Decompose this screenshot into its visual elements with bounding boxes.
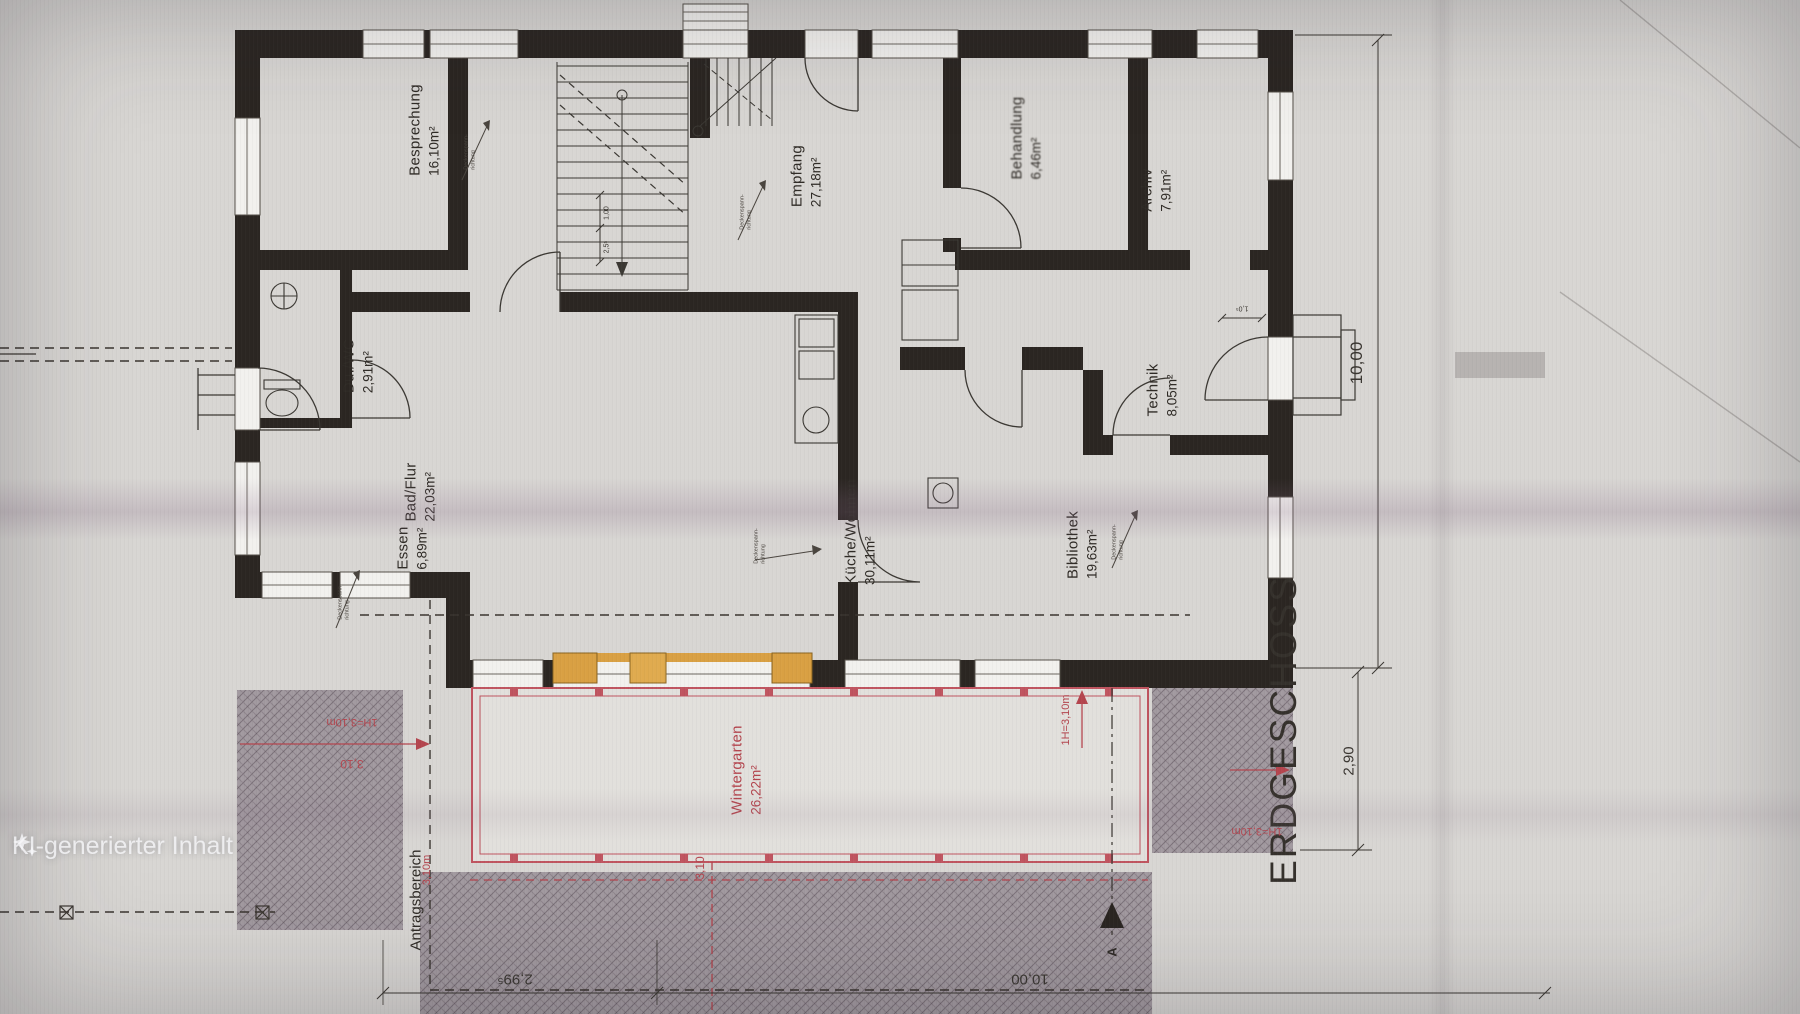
note-ceiling-empfang: Deckenspann- richtung bbox=[739, 194, 752, 229]
dim-right-total: 10,00 bbox=[1347, 342, 1367, 385]
sparkle-icon bbox=[12, 832, 38, 858]
note-ceiling-kueche: Deckenspann- richtung bbox=[753, 528, 766, 563]
dim-red-1h-left: 1H=3,10m bbox=[326, 716, 377, 728]
note-ceiling-essen: Deckenspann- richtung bbox=[337, 584, 350, 619]
doors bbox=[198, 58, 1268, 582]
dim-red-310-left: 3,10 bbox=[340, 757, 363, 771]
dim-bottom-left: 2,99⁵ bbox=[497, 971, 532, 988]
room-label-archiv: Archiv 7,91m² bbox=[1137, 168, 1174, 211]
section-letter: A bbox=[1105, 947, 1120, 956]
room-label-technik: Technik 8,05m² bbox=[1143, 364, 1180, 417]
wintergarten-outline bbox=[472, 688, 1148, 862]
room-label-bibliothek: Bibliothek 19,63m² bbox=[1063, 511, 1100, 579]
floor-plan-photo: Besprechung 16,10m² Empfang 27,18m² Beha… bbox=[0, 0, 1800, 1014]
room-label-essen: Essen 6,89m² bbox=[393, 526, 430, 569]
room-label-behandlung: Behandlung 6,46m² bbox=[1007, 96, 1044, 179]
dim-red-310m: 3,10m bbox=[421, 855, 433, 886]
plan-drawing bbox=[0, 0, 1800, 1014]
room-label-besprechung: Besprechung 16,10m² bbox=[405, 84, 442, 176]
stairs bbox=[557, 58, 776, 290]
dim-stair-2: 2,5⁵ bbox=[604, 241, 611, 254]
interior-walls bbox=[235, 58, 1293, 662]
room-label-wintergarten: Wintergarten 26,22m² bbox=[727, 725, 764, 814]
dim-red-1h-bottom: 1H=3,10m bbox=[1231, 825, 1282, 837]
note-ceiling-bibliothek: Deckenspann- richtung bbox=[1111, 524, 1124, 559]
room-label-empfang: Empfang 27,18m² bbox=[787, 145, 824, 207]
dim-bottom-mid: 10,00 bbox=[1011, 971, 1049, 988]
dim-right-lower: 2,90 bbox=[1341, 746, 1358, 775]
entrance-porch bbox=[1293, 315, 1355, 415]
dim-red-1h-right: 1H=3,10m bbox=[1060, 694, 1072, 745]
room-label-duwc: Du./WC 2,91m² bbox=[339, 339, 376, 393]
room-label-kueche: Küche/Wohnen 30,11m² bbox=[841, 479, 878, 585]
room-label-badflur: Bad/Flur 22,03m² bbox=[401, 462, 438, 521]
dim-door: 1,0⁵ bbox=[1236, 305, 1249, 312]
ai-watermark-text: KI-generierter Inhalt bbox=[12, 832, 233, 861]
ai-watermark: KI-generierter Inhalt bbox=[12, 832, 233, 861]
site-lines bbox=[1560, 0, 1800, 462]
dim-stair-1: 1,00 bbox=[604, 206, 611, 220]
note-ceiling-besprechung: Deckenspann- richtung bbox=[463, 134, 476, 169]
dim-red-310-mid: 3,10 bbox=[693, 856, 707, 879]
page-title: ERDGESCHOSS bbox=[1263, 575, 1305, 885]
